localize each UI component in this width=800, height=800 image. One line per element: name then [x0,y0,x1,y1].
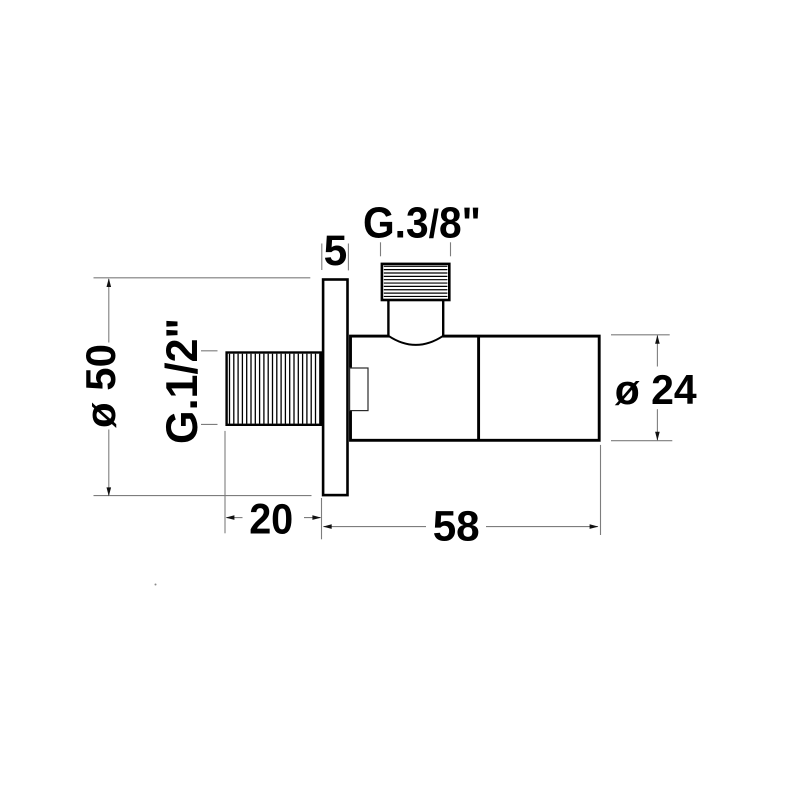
svg-text:G.3/8": G.3/8" [363,200,481,248]
svg-text:G.1/2": G.1/2" [158,318,207,444]
svg-text:20: 20 [249,496,293,543]
svg-text:ø 24: ø 24 [615,366,697,413]
svg-text:58: 58 [433,503,480,551]
svg-text:ø 50: ø 50 [77,344,124,428]
svg-text:5: 5 [324,228,348,275]
